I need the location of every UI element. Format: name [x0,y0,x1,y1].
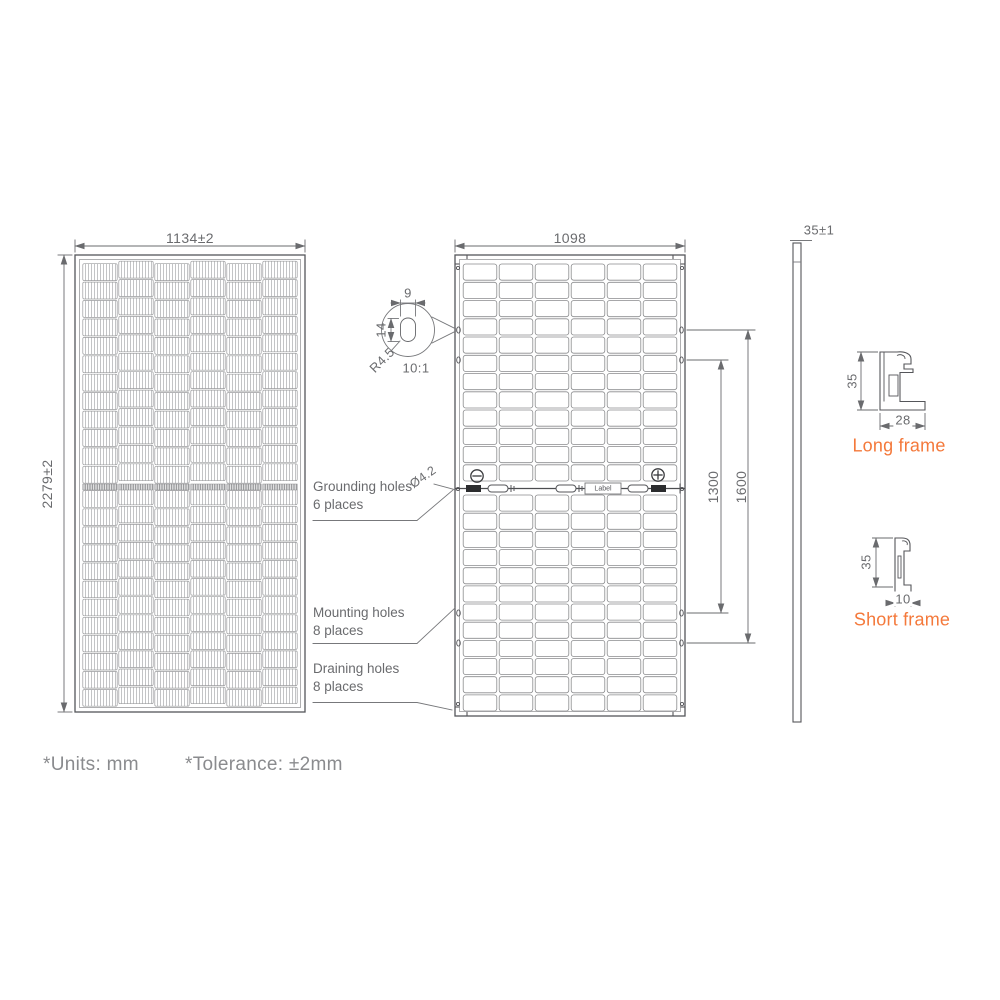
side-view [790,241,812,723]
short-frame-height-label: 35 [859,554,874,569]
short-frame-title: Short frame [854,610,950,631]
linework-layer [0,0,1000,1000]
short-frame-height-dimension [872,538,893,587]
draining-holes-line2: 8 places [313,678,399,696]
grounding-holes-line2: 6 places [313,496,412,514]
detail-width-label: 9 [404,286,412,301]
plus-terminal-icon [652,469,664,481]
mounting-holes-line2: 8 places [313,622,405,640]
grounding-holes-callout: Grounding holes 6 places [313,478,412,514]
front-height-dimension [58,255,72,712]
long-frame-height-label: 35 [845,373,860,388]
tolerance-note: *Tolerance: ±2mm [185,754,343,776]
detail-height-label: 14 [374,322,389,337]
short-frame-width-label: 10 [893,592,912,607]
mounting-span-inner-label: 1300 [705,471,721,504]
side-thickness-label: 35±1 [804,223,834,238]
long-frame-height-dimension [857,352,878,410]
draining-holes-line1: Draining holes [313,660,399,678]
mc4-connector-right [651,485,666,492]
front-height-dim-label: 2279±2 [39,459,55,508]
detail-scale-label: 10:1 [403,361,430,376]
long-frame-title: Long frame [852,436,945,457]
hole-detail-callout [382,300,457,357]
mounting-span-outer-label: 1600 [733,471,749,504]
front-panel-view [58,240,305,712]
units-note: *Units: mm [43,754,139,776]
grounding-holes-line1: Grounding holes [313,478,412,496]
long-frame-width-label: 28 [893,413,912,428]
front-width-dim-label: 1134±2 [166,230,214,246]
mounting-holes-callout: Mounting holes 8 places [313,604,405,640]
junction-label-text: Label [594,485,611,492]
draining-holes-callout: Draining holes 8 places [313,660,399,696]
diagram-canvas: 1134±2 2279±2 1098 1300 1600 Ø4.2 9 14 R… [0,0,1000,1000]
mc4-connector-left [466,485,481,492]
mounting-holes-line1: Mounting holes [313,604,405,622]
long-frame-profile [857,352,925,430]
back-width-dim-label: 1098 [554,230,587,246]
